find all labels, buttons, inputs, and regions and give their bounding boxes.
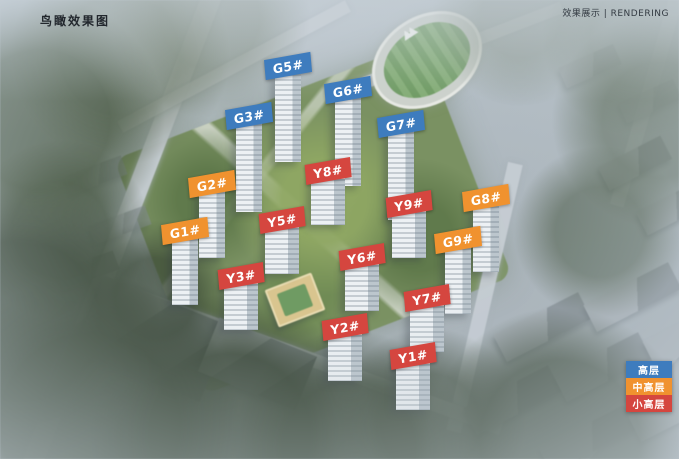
city-block [64,155,127,194]
tower-g5 [275,72,301,162]
tower-g3 [236,122,262,212]
legend-item-high_rise: 高层 [626,361,672,378]
tower-y2 [328,333,362,381]
city-block [493,292,591,362]
tower-y8 [311,177,345,225]
aerial-rendering: G5#G6#G3#G7#Y8#G2#G8#Y9#Y5#G1#G9#Y6#Y3#Y… [0,0,679,459]
legend-item-mid_high_rise: 中高层 [626,378,672,395]
page-title: 鸟瞰效果图 [40,12,110,29]
city-block [636,181,679,236]
legend-item-small_high_rise: 小高层 [626,395,672,412]
tower-y5 [265,226,299,274]
tower-y1 [396,362,430,410]
city-block [539,405,636,459]
tower-y6 [345,263,379,311]
tower-y9 [392,210,426,258]
city-block [558,44,622,89]
scene-background [0,0,679,459]
tower-y3 [224,282,258,330]
header-caption: 效果展示 | RENDERING [562,6,669,19]
kindergarten-courtyard [277,283,314,316]
city-block [463,365,561,435]
legend: 高层中高层小高层 [626,361,672,412]
tower-g1 [172,237,198,305]
city-block [583,262,679,332]
